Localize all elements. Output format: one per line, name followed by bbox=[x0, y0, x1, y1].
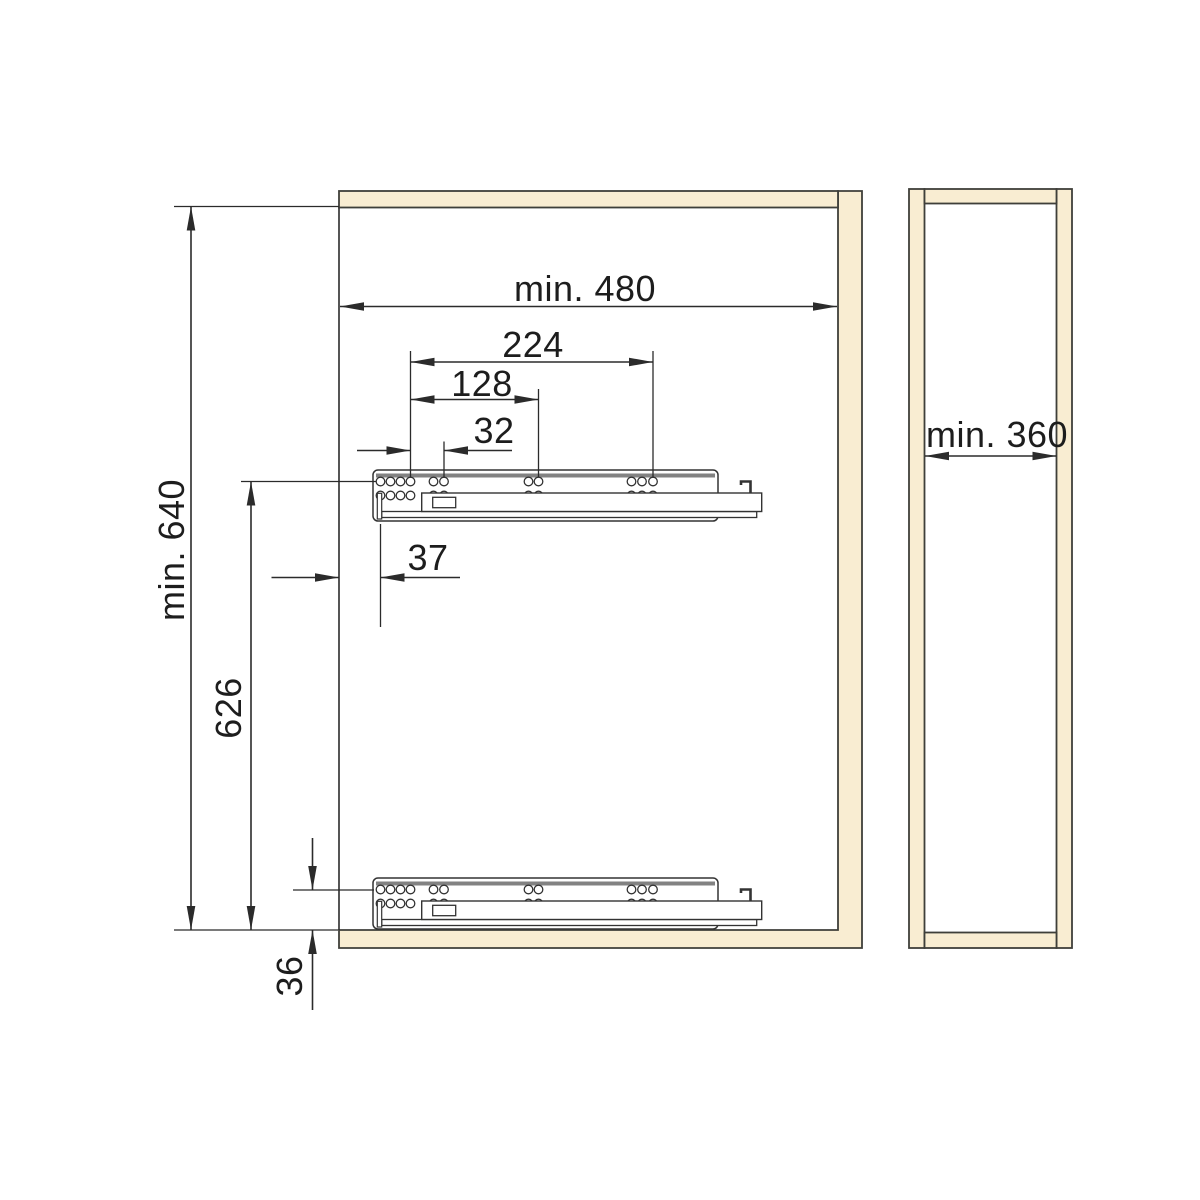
cabinet-side-view bbox=[909, 189, 1072, 948]
arrowhead bbox=[340, 302, 364, 311]
arrowhead bbox=[187, 207, 196, 231]
arrowhead bbox=[515, 395, 539, 404]
dim-label-rail-spacing: 626 bbox=[211, 677, 247, 739]
side-view-top-panel bbox=[925, 189, 1057, 204]
dim-label-depth: min. 360 bbox=[926, 417, 1068, 453]
front-view-top-panel bbox=[339, 191, 838, 208]
arrowhead bbox=[813, 302, 837, 311]
arrowhead bbox=[444, 446, 468, 455]
arrowhead bbox=[308, 930, 317, 954]
dim-label-interior-height: min. 640 bbox=[154, 479, 190, 621]
arrowhead bbox=[381, 573, 405, 582]
dim-label-hole-span-outer: 224 bbox=[502, 327, 564, 363]
side-view-bottom-panel bbox=[925, 933, 1057, 949]
dim-min-640 bbox=[174, 207, 339, 931]
arrowhead bbox=[411, 395, 435, 404]
dim-224 bbox=[411, 351, 654, 478]
dim-label-interior-width: min. 480 bbox=[514, 271, 656, 307]
arrowhead bbox=[187, 906, 196, 930]
arrowhead bbox=[411, 358, 435, 367]
arrowhead bbox=[247, 906, 256, 930]
dim-label-bottom-offset: 36 bbox=[272, 955, 308, 996]
installation-diagram-page: min. 480 224 128 32 37 min. 640 626 36 m… bbox=[0, 0, 1200, 1200]
side-view-left-panel bbox=[909, 189, 925, 948]
arrowhead bbox=[629, 358, 653, 367]
dim-label-hole-span-mid: 128 bbox=[451, 366, 513, 402]
dim-label-front-setback: 37 bbox=[407, 540, 448, 576]
arrowhead bbox=[308, 866, 317, 890]
dim-626 bbox=[241, 482, 376, 931]
arrowhead bbox=[387, 446, 411, 455]
drawer-slide-lower bbox=[373, 878, 762, 929]
drawer-slide-upper bbox=[373, 470, 762, 521]
side-view-right-panel bbox=[1057, 189, 1073, 948]
arrowhead bbox=[247, 482, 256, 506]
arrowhead bbox=[315, 573, 339, 582]
dim-label-hole-span-inner: 32 bbox=[473, 413, 514, 449]
